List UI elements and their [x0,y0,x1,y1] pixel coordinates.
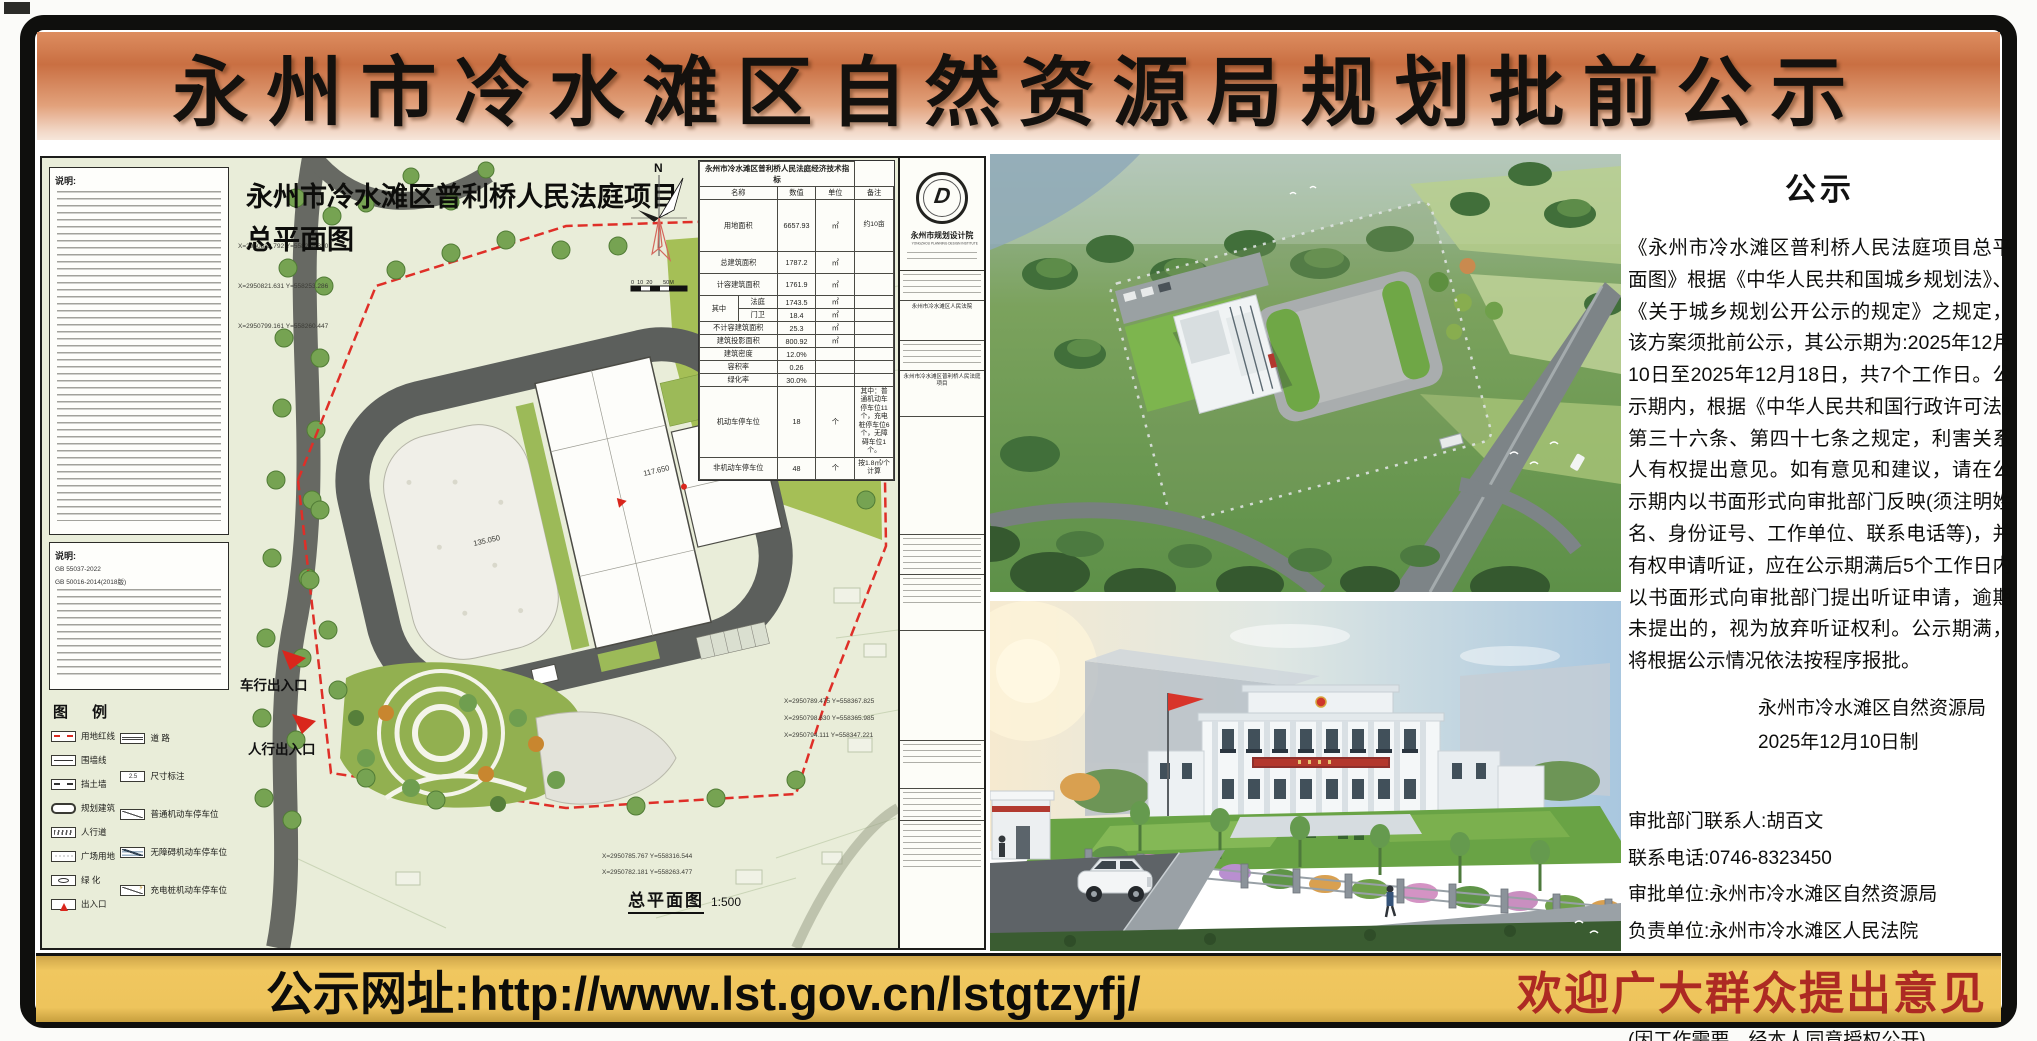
table-row: 非机动车停车位 48 个 按1.8㎡/个计算 [700,457,894,479]
signature-org: 永州市冷水滩区自然资源局 [1758,692,2012,726]
public-notice-column: 公示 《永州市冷水滩区普利桥人民法庭项目总平面图》根据《中华人民共和国城乡规划法… [1628,158,2012,1041]
planning-notice-poster: 永州市冷水滩区自然资源局规划批前公示 说明: 说明: GB 55037-2022… [0,0,2037,1041]
site-plan-sheet: 说明: 说明: GB 55037-2022 GB 50016-2014(2018… [40,156,986,950]
table-row: 用地面积 6657.93 ㎡ 约10亩 [700,200,894,252]
title-block-section [900,741,984,789]
entrance-swatch [51,899,76,910]
national-emblem [1316,697,1326,707]
notice-url: 公示网址:http://www.lst.gov.cn/lstgtzyfj/ [266,955,1141,1024]
design-institute-stamp: D 永州市规划设计院 YONGZHOU PLANNING DESIGN INST… [900,158,984,271]
pedestrian [1386,886,1395,918]
gatehouse [990,791,1054,859]
legend-item: 挡土墙 [51,778,120,790]
notes-fake-text [57,191,221,521]
certificate-lines [907,252,977,264]
notes-fake-text-2 [57,589,221,675]
plan-overlay-title: 永州市冷水滩区普利桥人民法庭项目 总平面图 [246,176,678,262]
retaining-wall [1230,814,1422,838]
table-row: 机动车停车位 18 个 其中：普通机动车停车位11个，充电桩停车位6个，无障碍车… [700,387,894,458]
svg-text:X=2950798.630 Y=558365.985: X=2950798.630 Y=558365.985 [784,715,875,722]
compass-graphic: N [628,160,690,322]
pedestrian-entrance-label: 人行出入口 [248,738,316,758]
plan-scale-ratio: 1:500 [711,895,741,909]
contact-line: 联系电话:0746-8323450 [1628,841,2012,877]
title-block-strip: D 永州市规划设计院 YONGZHOU PLANNING DESIGN INST… [898,158,984,948]
svg-text:X=2950782.181 Y=558263.477: X=2950782.181 Y=558263.477 [602,869,693,876]
cloud [1460,646,1560,666]
legend-item: ⚡充电桩机动车停车位 [120,884,227,896]
greenery-swatch [51,875,76,886]
north-letter: N [654,161,663,175]
table-row: 容积率0.26 [700,361,894,374]
legend-item: 绿 化 [51,874,120,886]
legend-item: 2.5尺寸标注 [120,770,227,782]
tech-indicator-table: 永州市冷水滩区普利桥人民法庭经济技术指标 名称 数值 单位 备注 用地面积 66… [698,160,895,481]
vehicle-entrance-label: 车行出入口 [240,674,308,694]
street-rendering [990,601,1621,951]
contact-line: 审批单位:永州市冷水滩区自然资源局 [1628,877,2012,913]
scale-bar-labels: 0 10 20 50M [631,280,674,286]
notes-box-1: 说明: [49,167,229,535]
parking-swatch [120,809,145,820]
title-block-section [900,575,984,631]
east-wing [1438,751,1500,817]
legend-item: 道 路 [120,732,227,744]
title-block-owner: 永州市冷水滩区人民法院 [900,301,984,341]
drawing-notes-column: 说明: 说明: GB 55037-2022 GB 50016-2014(2018… [42,158,236,948]
ev-parking-swatch: ⚡ [120,885,145,896]
aerial-rendering-graphic [990,154,1621,592]
garden [340,662,676,812]
title-block-section [900,341,984,371]
site-plan-area: 135.050 117.650 X=2950832.792 Y=558258.3… [236,158,898,948]
footer-banner: 公示网址:http://www.lst.gov.cn/lstgtzyfj/ 欢迎… [36,953,2001,1022]
sidewalk-swatch [51,827,76,838]
wall-line-swatch [51,755,76,766]
title-block-section [900,417,984,535]
legend-item: 规划建筑 [51,802,120,814]
north-compass: N 0 10 20 50M [628,160,690,322]
legend-item: 无障碍机动车停车位 [120,846,227,858]
svg-text:X=2950794.111 Y=558347.221: X=2950794.111 Y=558347.221 [784,732,874,739]
red-boundary-swatch [51,731,76,742]
legend-item: 围墙线 [51,754,120,766]
table-row: 计容建筑面积 1761.9 ㎡ [700,274,894,296]
title-block-section [900,821,984,948]
plan-title-line1: 永州市冷水滩区普利桥人民法庭项目 [246,176,678,219]
legend-item: 广场用地 [51,850,120,862]
institute-name: 永州市规划设计院 [907,229,977,240]
legend-left-column: 用地红线 围墙线 挡土墙 规划建筑 人行道 广场用地 绿 化 出入口 [51,730,120,910]
notes-heading-1: 说明: [55,174,223,187]
dimension-swatch: 2.5 [120,771,145,782]
corner-notch [4,2,30,14]
west-wing [1148,751,1204,817]
legend-item: 人行道 [51,826,120,838]
table-row: 建筑密度12.0% [700,348,894,361]
contact-line: 审批部门联系人:胡百文 [1628,804,2012,840]
legend-item: 普通机动车停车位 [120,808,227,820]
aerial-rendering [990,154,1621,592]
plan-scale-caption: 总平面图 1:500 [628,886,741,914]
table-row: 不计容建筑面积25.3㎡ [700,322,894,335]
retaining-wall-swatch [51,779,76,790]
institute-name-en: YONGZHOU PLANNING DESIGN INSTITUTE [912,242,973,246]
contact-line: (因工作需要，经本人同意授权公开) [1628,1023,2012,1041]
plan-title-line2: 总平面图 [246,219,678,262]
notice-signature: 永州市冷水滩区自然资源局 2025年12月10日制 [1628,692,2012,760]
title-block-section [900,271,984,301]
plan-scale-name: 总平面图 [628,886,704,914]
notice-body: 《永州市冷水滩区普利桥人民法庭项目总平面图》根据《中华人民共和国城乡规划法》、《… [1628,233,2012,678]
notice-heading: 公示 [1628,164,2012,209]
notes-box-2: 说明: GB 55037-2022 GB 50016-2014(2018版) [49,542,229,690]
legend-item: 用地红线 [51,730,120,742]
code-ref-1: GB 55037-2022 [55,566,223,573]
street-rendering-graphic [990,601,1621,951]
plaza-swatch [51,851,76,862]
welcome-slogan: 欢迎广大群众提出意见 [1517,957,1987,1022]
svg-text:X=2950785.767 Y=558316.544: X=2950785.767 Y=558316.544 [602,853,693,860]
table-row: 建筑投影面积800.92㎡ [700,335,894,348]
poster-title: 永州市冷水滩区自然资源局规划批前公示 [173,31,1865,141]
table-title: 永州市冷水滩区普利桥人民法庭经济技术指标 [700,162,855,187]
table-row: 绿化率30.0% [700,374,894,387]
title-block-section [900,631,984,741]
scale-bar [631,286,687,291]
planned-building-swatch [51,803,76,814]
autumn-tree [1060,773,1100,801]
code-ref-2: GB 50016-2014(2018版) [55,576,223,586]
svg-text:X=2950799.161 Y=558260.447: X=2950799.161 Y=558260.447 [238,323,329,330]
road-swatch [120,733,145,744]
contact-line: 负责单位:永州市冷水滩区人民法院 [1628,914,2012,950]
title-block-section [900,535,984,575]
title-banner: 永州市冷水滩区自然资源局规划批前公示 [37,32,2000,140]
signature-date: 2025年12月10日制 [1758,726,2012,760]
svg-text:X=2950821.631 Y=558253.286: X=2950821.631 Y=558253.286 [238,283,329,290]
accessible-parking-swatch [120,847,145,858]
table-row: 总建筑面积 1787.2 ㎡ [700,252,894,274]
legend-item: 出入口 [51,898,120,910]
legend-right-column: 道 路 2.5尺寸标注 普通机动车停车位 无障碍机动车停车位 ⚡充电桩机动车停车… [120,730,227,910]
cloud [1230,624,1350,648]
legend-heading: 图 例 [53,701,227,722]
notes-heading-2: 说明: [55,549,223,562]
title-block-project: 永州市冷水滩区普利桥人民法庭项目 [900,371,984,417]
title-block-section [900,789,984,821]
table-row: 其中 法庭 1743.5 ㎡ [700,296,894,309]
legend: 图 例 用地红线 围墙线 挡土墙 规划建筑 人行道 广场用地 绿 化 出入口 道… [49,697,229,912]
svg-text:X=2950789.475 Y=558367.825: X=2950789.475 Y=558367.825 [784,698,875,705]
institute-seal-icon: D [916,172,968,224]
